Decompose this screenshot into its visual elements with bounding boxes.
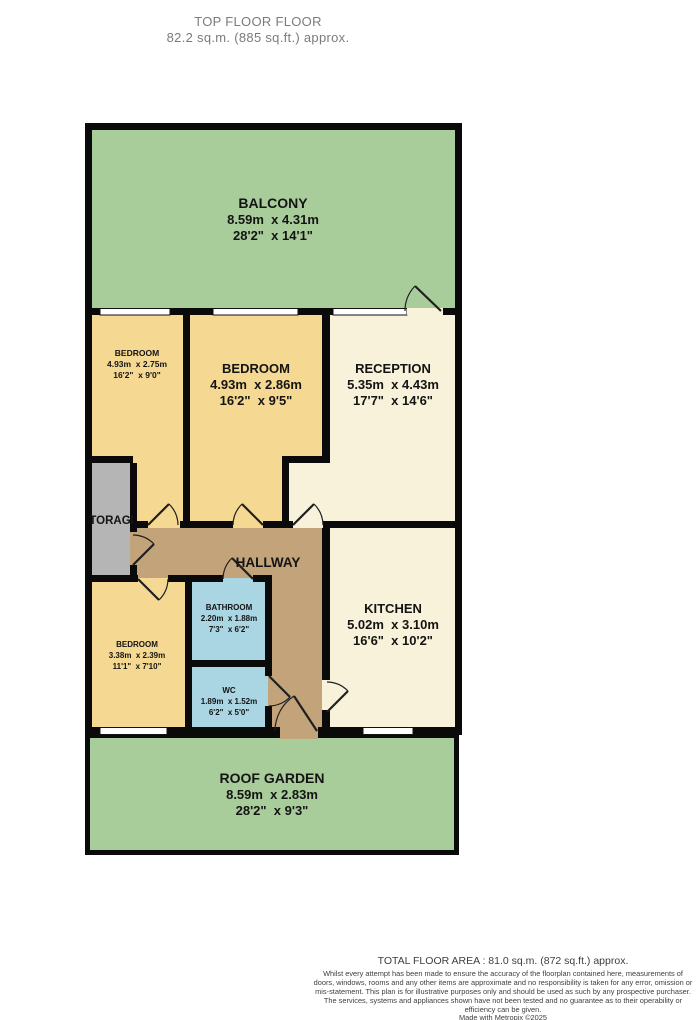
wall	[263, 521, 293, 528]
room-dimensions-metric: 4.93m x 2.86m	[210, 377, 302, 392]
window	[213, 309, 298, 316]
wall	[167, 727, 280, 735]
wall	[185, 660, 272, 667]
wall	[323, 521, 459, 528]
room-dimensions-metric: 8.59m x 2.83m	[226, 787, 318, 802]
wall	[185, 575, 192, 733]
room-dimensions-imperial: 6'2" x 5'0"	[209, 708, 250, 717]
room-name: STORAGE	[82, 515, 139, 527]
room-dimensions-metric: 2.20m x 1.88m	[201, 614, 257, 623]
room-name: HALLWAY	[236, 555, 301, 570]
room-label-reception: RECEPTION 5.35m x 4.43m 17'7" x 14'6"	[347, 361, 439, 408]
wall	[282, 456, 289, 528]
room-dimensions-imperial: 28'2" x 9'3"	[236, 803, 309, 818]
window	[100, 309, 170, 316]
room-dimensions-metric: 4.93m x 2.75m	[107, 359, 167, 369]
wall	[322, 528, 330, 680]
room-name: BATHROOM	[206, 603, 253, 612]
room-dimensions-imperial: 16'2" x 9'0"	[113, 370, 161, 380]
room-label-balcony: BALCONY 8.59m x 4.31m 28'2" x 14'1"	[227, 195, 319, 243]
room-dimensions-imperial: 11'1" x 7'10"	[113, 662, 162, 671]
room-label-hallway: HALLWAY	[236, 555, 301, 570]
room-label-bedroom2: BEDROOM 4.93m x 2.86m 16'2" x 9'5"	[210, 361, 302, 408]
window	[333, 309, 407, 316]
total-floor-area: TOTAL FLOOR AREA : 81.0 sq.m. (872 sq.ft…	[312, 955, 694, 967]
room-dimensions-metric: 8.59m x 4.31m	[227, 212, 319, 227]
window	[363, 728, 413, 735]
wall	[183, 312, 190, 528]
room-dimensions-metric: 5.02m x 3.10m	[347, 617, 439, 632]
room-name: BEDROOM	[115, 348, 159, 358]
wall	[85, 727, 100, 735]
wall	[85, 456, 133, 463]
footer: TOTAL FLOOR AREA : 81.0 sq.m. (872 sq.ft…	[312, 955, 694, 1020]
room-name: BEDROOM	[222, 361, 290, 376]
disclaimer-text: Whilst every attempt has been made to en…	[312, 970, 694, 1014]
room-dimensions-imperial: 16'2" x 9'5"	[220, 393, 293, 408]
window	[100, 728, 167, 735]
room-label-bedroom3: BEDROOM 3.38m x 2.39m 11'1" x 7'10"	[109, 640, 165, 671]
room-name: RECEPTION	[355, 361, 431, 376]
wall	[265, 706, 272, 733]
room-name: WC	[222, 686, 236, 695]
wall	[180, 521, 233, 528]
wall	[322, 312, 330, 463]
wall	[443, 308, 462, 315]
room-dimensions-imperial: 16'6" x 10'2"	[353, 633, 433, 648]
garden-door-opening	[280, 727, 318, 739]
wall	[282, 456, 330, 463]
room-label-bathroom: BATHROOM 2.20m x 1.88m 7'3" x 6'2"	[201, 603, 257, 634]
room-dimensions-metric: 1.89m x 1.52m	[201, 697, 257, 706]
wall	[322, 710, 330, 733]
room-name: BALCONY	[238, 195, 308, 211]
floorplan-drawing: BALCONY 8.59m x 4.31m 28'2" x 14'1" BEDR…	[0, 0, 700, 1020]
room-label-storage: STORAGE	[82, 515, 139, 527]
room-dimensions-imperial: 28'2" x 14'1"	[233, 228, 313, 243]
room-name: ROOF GARDEN	[220, 770, 325, 786]
room-name: BEDROOM	[116, 640, 158, 649]
wall	[85, 123, 462, 130]
metropix-credit: Made with Metropix ©2025	[312, 1014, 694, 1020]
wall	[170, 308, 213, 315]
wall	[168, 575, 223, 582]
wall	[85, 308, 100, 315]
room-dimensions-metric: 5.35m x 4.43m	[347, 377, 439, 392]
wall	[413, 727, 462, 735]
room-dimensions-imperial: 17'7" x 14'6"	[353, 393, 433, 408]
room-label-bedroom1: BEDROOM 4.93m x 2.75m 16'2" x 9'0"	[107, 348, 167, 380]
floorplan-page: TOP FLOOR FLOOR 82.2 sq.m. (885 sq.ft.) …	[0, 0, 700, 1020]
room-dimensions-imperial: 7'3" x 6'2"	[209, 625, 250, 634]
wall	[455, 123, 462, 735]
wall	[85, 123, 92, 735]
wall	[85, 575, 138, 582]
room-name: KITCHEN	[364, 601, 422, 616]
room-dimensions-metric: 3.38m x 2.39m	[109, 651, 165, 660]
